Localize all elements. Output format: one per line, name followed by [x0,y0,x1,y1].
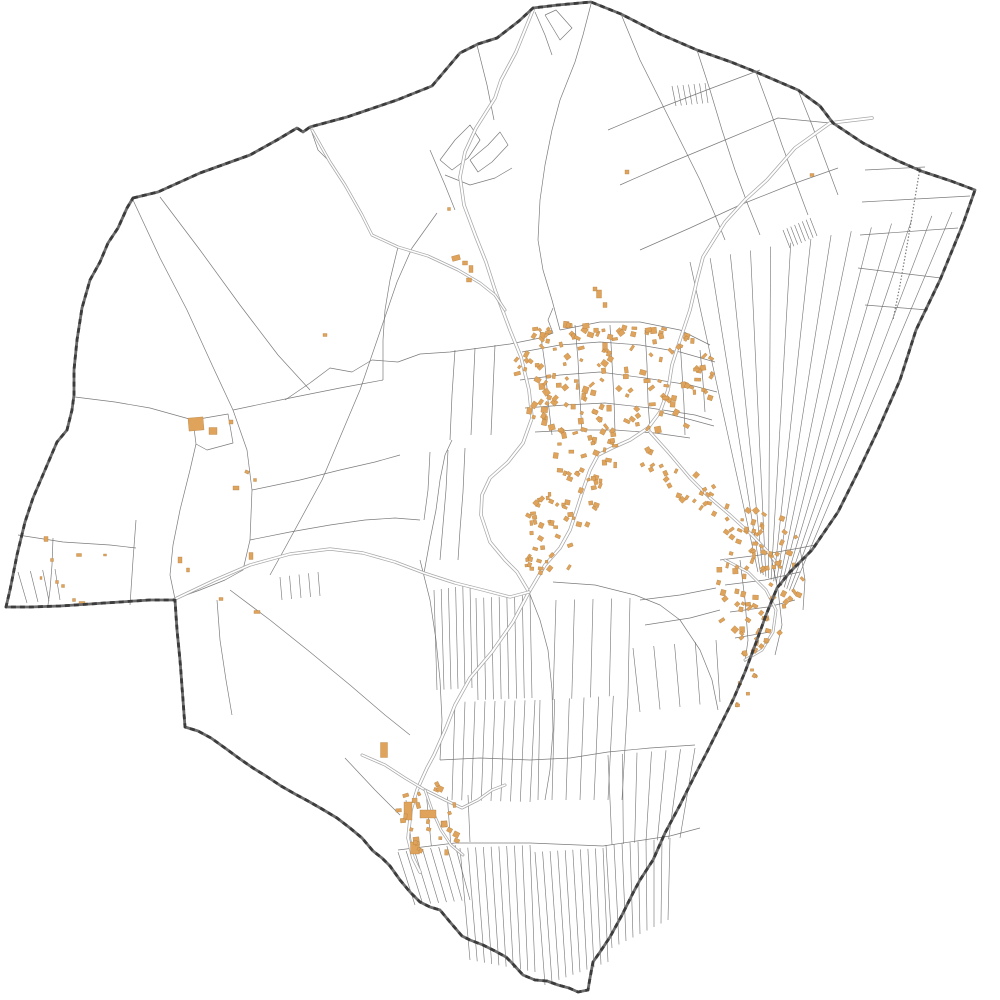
building [777,630,783,636]
building [533,519,537,524]
building [629,345,634,351]
parcel-line [458,448,465,560]
building [720,589,726,596]
building [740,591,746,597]
building [565,376,569,380]
building [44,537,48,542]
building [744,527,749,533]
building [77,554,82,557]
building [726,562,730,568]
strip-parcel-line [530,595,532,698]
strip-parcel-line [43,570,49,601]
building [526,407,532,414]
building [659,357,663,362]
municipal-boundary [6,2,975,992]
strip-parcel-line [795,225,802,243]
building [640,462,645,467]
parcel-line [529,592,553,800]
strip-parcel-line [543,852,552,983]
building [454,838,460,844]
strip-parcel-line [689,85,693,105]
building [750,669,753,671]
building [530,567,534,571]
strip-parcel-line [798,223,805,241]
strip-parcel-line [30,571,38,602]
building [579,358,583,362]
parcel-line [610,325,615,432]
strip-parcel-line [623,754,624,844]
strip-parcel-line [507,596,509,699]
strip-parcel-line [522,595,524,698]
building [530,531,534,535]
strip-parcel-line [456,587,458,689]
building [764,638,769,642]
building [607,356,614,363]
building [758,610,764,616]
building [567,543,573,548]
building [545,417,548,420]
strip-parcel-line [787,228,794,246]
parcel-line [621,14,725,240]
building [667,483,673,489]
strip-parcel-line [530,845,535,972]
building [751,519,756,525]
building [553,452,559,458]
building [178,557,182,563]
building [593,287,597,291]
strip-parcel-line [771,243,791,580]
building [603,423,609,429]
parcel-line [491,345,495,435]
strip-parcel-line [783,230,790,248]
strip-parcel-line [678,86,682,106]
building [591,441,595,445]
strip-parcel-line [633,648,640,712]
building [420,810,436,818]
building [585,522,591,528]
building [630,331,636,337]
building [745,617,751,623]
building [531,333,537,339]
building [750,558,755,564]
parcel-line [270,213,437,575]
building [426,827,431,831]
building [652,339,656,344]
strip-parcel-line [802,221,809,239]
strip-parcel-line [447,846,462,901]
building [601,368,606,374]
building [566,564,571,570]
building [782,529,788,535]
building [445,850,449,856]
strip-parcel-line [491,701,495,801]
building [553,526,557,529]
building [528,358,534,364]
parcel-line [130,520,136,605]
strip-parcel-line [452,702,455,800]
building [572,431,578,435]
parcel-line [383,247,398,380]
building [467,278,472,282]
strip-parcel-line [434,590,437,690]
building [623,374,628,379]
strip-parcel-line [538,700,540,800]
strip-parcel-line [290,576,292,599]
strip-parcel-line [530,700,535,802]
building [538,328,542,332]
building [729,534,736,541]
road [175,549,529,599]
road [312,130,505,310]
strip-parcel-line [779,231,851,584]
parcel-line [522,342,715,362]
building [581,427,588,432]
building [800,576,805,581]
building [254,479,257,482]
strip-parcel-line [522,845,528,970]
parcel-line [420,560,442,760]
building [742,650,747,656]
building [576,383,579,389]
building [664,384,670,387]
building [556,383,561,388]
building [597,290,602,298]
strip-parcel-line [566,698,569,800]
parcel-line [620,118,830,185]
strip-parcel-line [299,575,301,599]
parcel-line [535,12,552,55]
building [587,332,594,338]
building [566,476,573,482]
building [62,585,65,588]
building [600,428,607,435]
building [635,413,641,419]
building [693,390,696,395]
building [699,505,704,511]
parcel-line [160,197,310,390]
building [51,559,54,562]
building [725,517,730,522]
building [597,363,601,367]
building [249,553,253,560]
building [219,598,223,601]
building [599,404,605,410]
strip-parcel-line [595,848,601,964]
strip-parcel-line [481,701,485,801]
strip-parcel-line [638,842,640,935]
strip-parcels-layer [18,83,952,985]
strip-parcel-line [580,698,584,801]
building [528,557,533,562]
building [233,486,239,490]
building [416,802,421,809]
parcel-line [538,130,560,330]
building [662,396,668,400]
building [607,405,612,411]
building [574,335,581,340]
building [469,266,473,273]
strip-parcel-line [550,851,559,980]
building [517,365,521,369]
building [661,327,667,331]
building [589,382,595,388]
building [582,386,589,394]
strip-parcel-line [609,599,611,697]
building [553,348,557,351]
building [624,367,628,374]
building [530,512,535,515]
building [752,542,757,546]
parcel-line [18,535,136,548]
strip-parcel-line [565,850,573,975]
building [729,551,733,555]
building [538,570,543,575]
building [591,409,598,415]
strip-parcel-line [654,646,660,710]
strip-parcel-line [635,753,637,843]
building [734,589,739,594]
parcel-line [680,620,718,710]
building [446,827,452,833]
strip-parcel-line [657,750,666,840]
building [568,512,574,517]
building [612,444,618,447]
building [104,554,107,556]
building [731,626,739,634]
building [245,470,250,474]
building [717,567,722,572]
building [741,602,745,606]
building [779,515,785,521]
strip-parcel-line [774,239,811,581]
parcel-line [552,4,591,130]
building [569,450,574,453]
building [782,604,786,609]
building [546,375,551,379]
strip-parcel-line [460,848,470,960]
building [746,602,751,606]
building [439,837,442,840]
building [739,635,744,640]
building [403,814,407,819]
building [600,359,608,367]
strip-parcel-line [588,849,594,967]
parcel-line [858,268,941,278]
building [532,327,538,331]
parcel-line [477,45,494,120]
building [693,368,699,371]
building [590,390,596,396]
building [690,338,694,343]
parcel-line [440,450,448,560]
strip-parcel-line [791,227,798,245]
building [451,255,460,262]
building [452,831,460,838]
building [649,402,656,406]
building [532,515,537,519]
building [412,798,417,803]
building [514,371,521,376]
strip-parcel-line [646,841,647,931]
building [670,401,675,407]
building [810,174,814,177]
building [752,603,759,609]
parcel-line [608,70,760,130]
strip-parcel-line [499,597,501,699]
building [654,426,661,434]
strip-parcel-line [810,218,817,236]
building [578,346,585,351]
building [761,525,764,530]
building [441,821,448,828]
strip-parcel-line [448,588,451,689]
building [683,423,690,429]
parcel-line [545,10,572,40]
cadastral-map-canvas [0,0,1000,1000]
building [674,468,678,473]
parcel-line [252,455,400,490]
building [701,353,707,359]
building [607,334,613,340]
building [603,303,607,308]
municipal-boundary-stitch [6,2,975,992]
strip-parcel-line [782,227,872,585]
building [738,607,743,612]
strip-parcel-line [572,600,575,699]
building [538,567,543,570]
building [599,479,602,483]
strip-parcel-line [472,702,476,801]
building [761,512,767,517]
strip-parcel-line [675,644,681,707]
building [564,353,571,360]
building [625,393,629,397]
building [632,327,637,330]
building [737,528,743,533]
building [527,562,532,567]
building [649,352,654,357]
strip-parcel-line [55,569,60,600]
building [752,507,760,515]
parcel-line [450,350,455,440]
building [628,388,634,394]
building [648,385,655,391]
strip-parcel-line [594,697,599,800]
building [187,568,190,572]
building [537,535,544,541]
strip-parcel-line [787,220,912,589]
building [447,811,451,815]
building [694,378,700,381]
strip-parcel-line [507,846,514,968]
strip-parcel-line [646,752,652,842]
strip-parcel-line [690,262,758,572]
strip-parcel-line [491,847,499,966]
building [56,581,59,584]
parcel-line [553,582,680,620]
parcel-line [645,610,720,625]
building [581,453,587,458]
municipal-boundary-layer [6,2,975,992]
parcel-line [250,518,420,540]
strip-parcel-line [309,573,311,597]
building [598,483,603,489]
building [707,395,713,401]
building [563,471,567,476]
strip-parcel-line [414,850,430,904]
strip-parcel-line [622,843,626,941]
building [552,373,556,379]
strip-parcel-line [608,696,613,800]
building [545,560,548,563]
building [591,485,597,490]
strip-parcel-line [280,577,282,600]
strip-parcel-line [789,216,931,591]
building [650,463,655,468]
building [768,551,772,556]
strip-parcel-line [558,851,566,978]
parcel-line [697,50,760,235]
strip-parcel-line [431,848,447,902]
building [645,327,652,332]
building [381,743,388,758]
parcel-line [470,132,508,172]
strip-parcel-line [520,700,525,802]
building [722,595,729,602]
building [545,330,551,334]
strip-parcel-line [668,838,670,920]
building [561,384,568,391]
building [559,342,563,348]
building [555,502,559,506]
building [571,404,576,409]
building [540,546,544,550]
building [625,170,629,174]
road-casing [650,432,778,565]
building [588,501,593,506]
strip-parcel-line [768,247,770,579]
building [545,339,549,344]
building [532,547,537,551]
building [579,467,585,472]
building [546,496,550,500]
strip-parcel-line [468,848,477,962]
building [548,492,551,496]
building [615,385,622,392]
building [772,565,776,569]
parcel-line [575,325,582,432]
building [229,420,233,424]
strip-parcel-line [683,85,687,105]
building [735,539,741,545]
building [746,692,750,695]
building [402,793,408,798]
building [548,424,555,431]
building [742,574,746,579]
building [753,595,759,600]
strip-parcel-line [484,598,486,700]
parcel-line [424,452,430,520]
building [614,462,617,468]
building [541,419,547,426]
strip-parcel-line [784,224,891,588]
building [663,470,669,476]
building [587,435,592,441]
parcel-line [170,444,196,599]
strip-parcel-line [553,600,556,700]
building [463,261,468,265]
building [741,518,744,521]
